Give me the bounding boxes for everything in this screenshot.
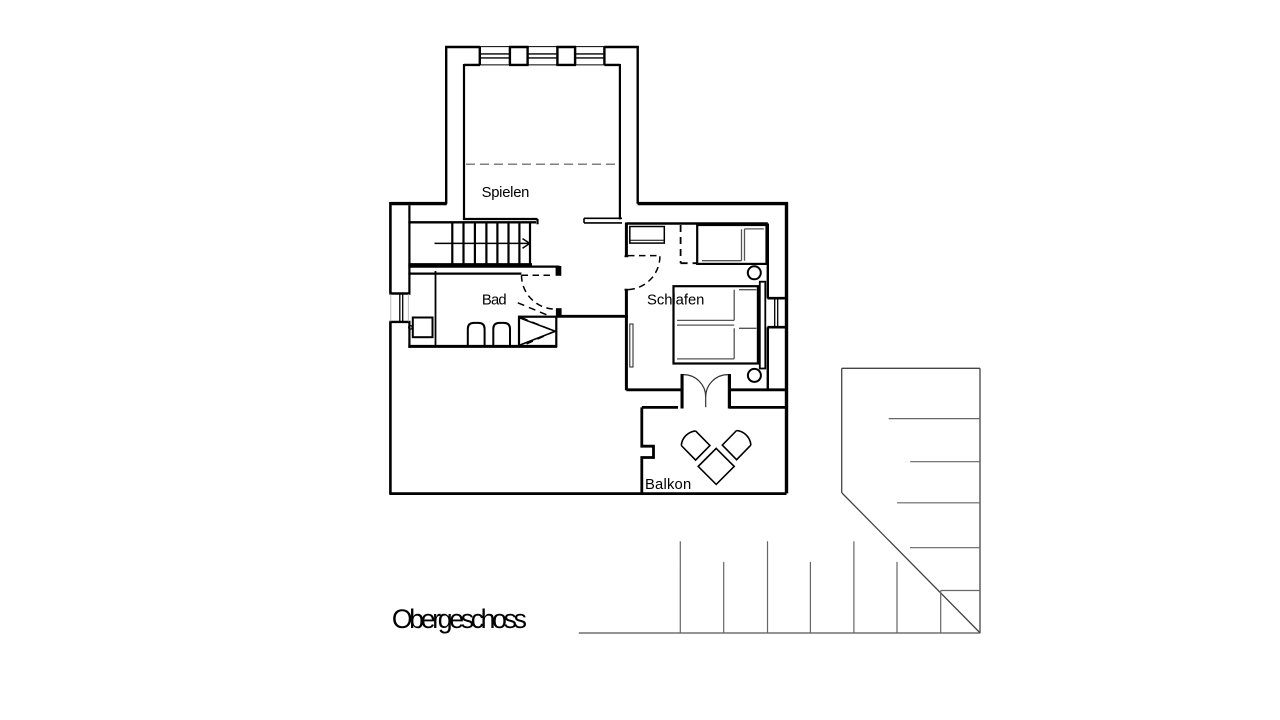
svg-text:Obergeschoss: Obergeschoss [392,604,527,634]
svg-text:Spielen: Spielen [482,185,530,201]
svg-text:Bad: Bad [482,293,507,309]
svg-text:Balkon: Balkon [645,477,691,493]
svg-text:Schlafen: Schlafen [647,292,704,308]
